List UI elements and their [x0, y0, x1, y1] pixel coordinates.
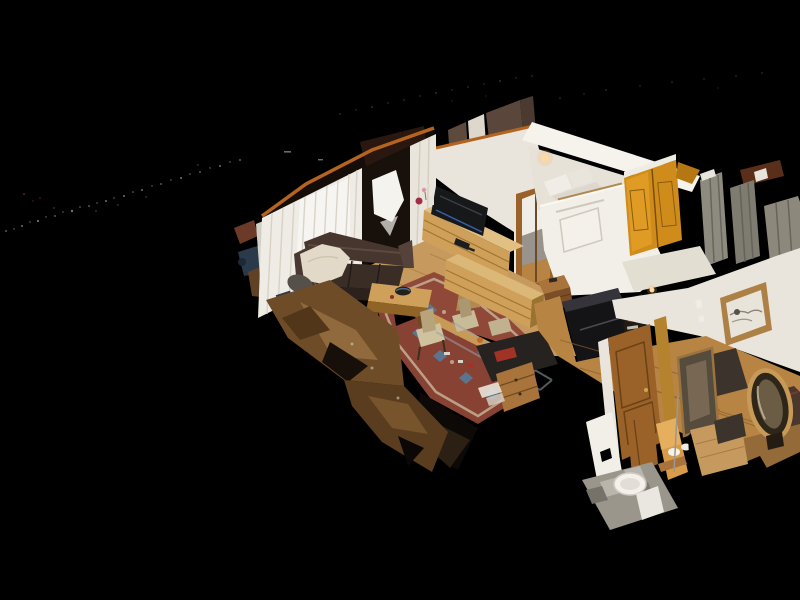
wall-sconce-left: [537, 150, 553, 166]
washbasin: [668, 448, 680, 456]
dollhouse-3d-view[interactable]: [0, 0, 800, 600]
door-handle: [644, 388, 648, 392]
hallway-sconce: [647, 285, 657, 295]
dollhouse-viewport[interactable]: [0, 0, 800, 600]
decorative-bowl: [395, 287, 411, 296]
tall-wall-mirror: [678, 348, 718, 436]
red-disc: [416, 198, 423, 205]
